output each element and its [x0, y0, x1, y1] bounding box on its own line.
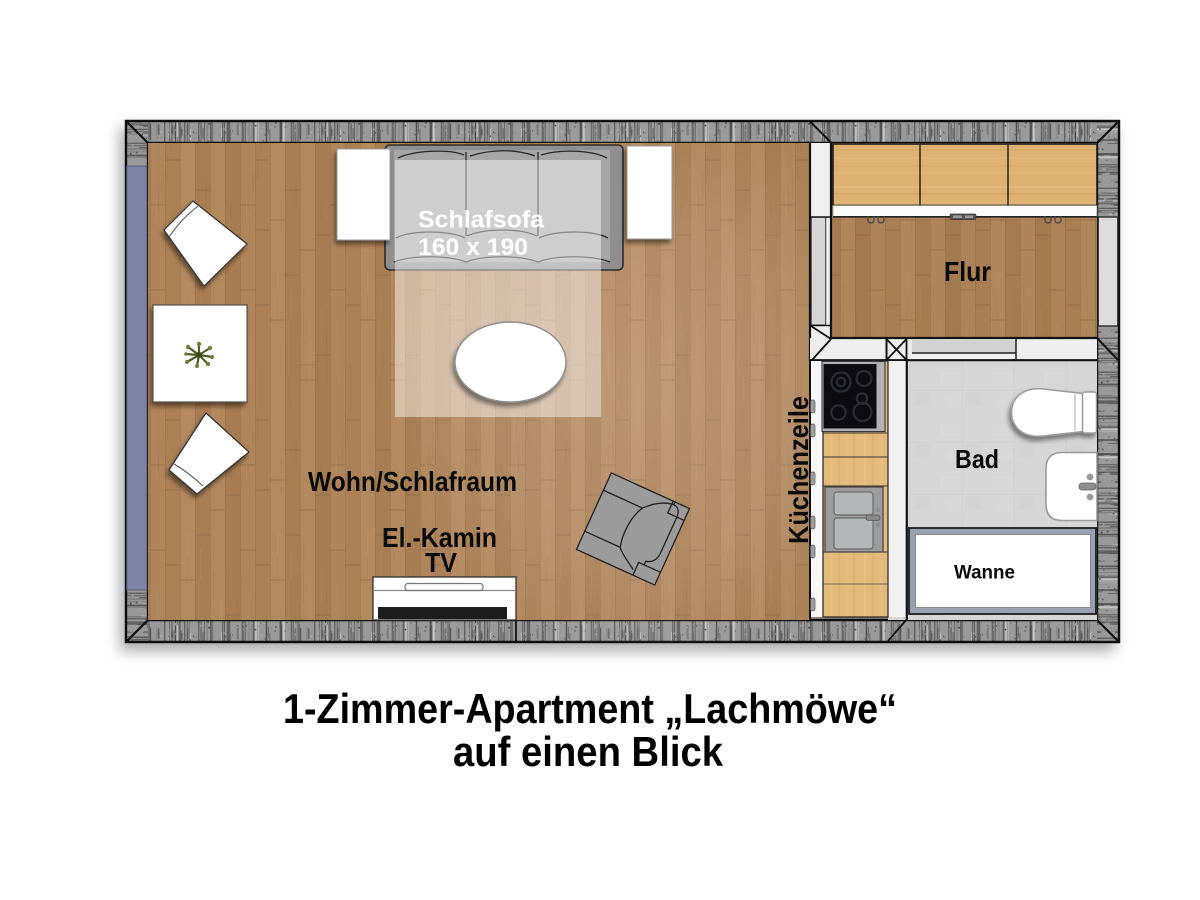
svg-text:Wanne: Wanne — [954, 562, 1015, 584]
svg-text:Küchenzeile: Küchenzeile — [783, 396, 814, 544]
svg-text:Bad: Bad — [955, 444, 999, 474]
svg-text:Flur: Flur — [944, 256, 991, 287]
svg-text:Wohn/Schlafraum: Wohn/Schlafraum — [308, 466, 517, 497]
svg-text:160 x 190: 160 x 190 — [418, 234, 528, 261]
svg-text:Schlafsofa: Schlafsofa — [418, 207, 544, 234]
svg-text:1-Zimmer-Apartment „Lachmöwe“: 1-Zimmer-Apartment „Lachmöwe“ — [283, 685, 897, 732]
svg-text:TV: TV — [425, 547, 457, 578]
svg-text:auf einen Blick: auf einen Blick — [453, 728, 724, 775]
